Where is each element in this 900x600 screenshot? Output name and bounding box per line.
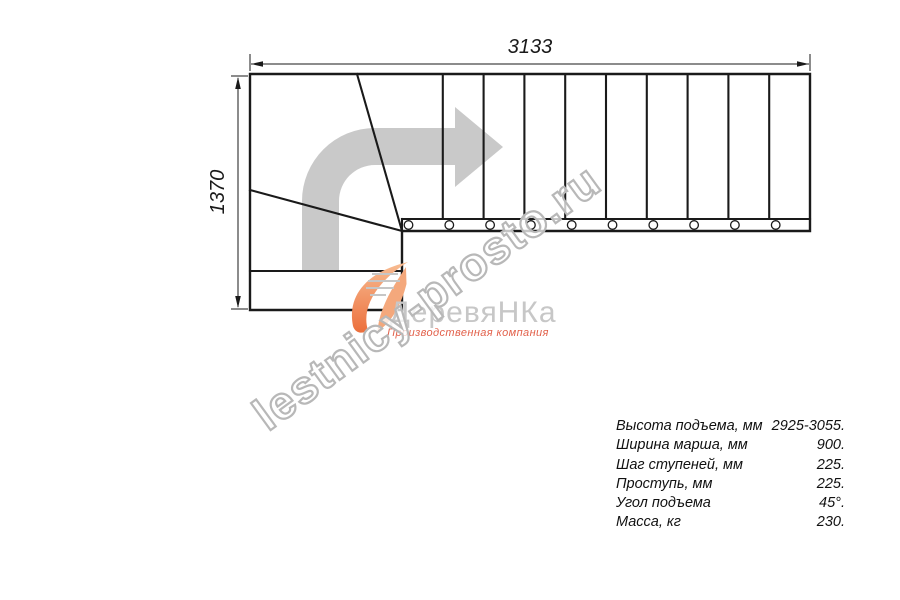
spec-label: Ширина марша, мм bbox=[616, 436, 748, 455]
spec-row-mass: Масса, кг 230. bbox=[616, 513, 845, 532]
fastener-circle bbox=[445, 221, 454, 230]
spec-value: 225. bbox=[817, 456, 845, 475]
spec-label: Шаг ступеней, мм bbox=[616, 456, 743, 475]
specs-table: Высота подъема, мм 2925-3055. Ширина мар… bbox=[616, 417, 845, 533]
spec-value: 225. bbox=[817, 475, 845, 494]
fastener-circle bbox=[771, 221, 780, 230]
fastener-circle bbox=[731, 221, 740, 230]
spec-value: 2925-3055. bbox=[772, 417, 845, 436]
spec-label: Высота подъема, мм bbox=[616, 417, 763, 436]
spec-row-step-pitch: Шаг ступеней, мм 225. bbox=[616, 456, 845, 475]
spec-label: Масса, кг bbox=[616, 513, 681, 532]
spec-row-tread: Проступь, мм 225. bbox=[616, 475, 845, 494]
fastener-circle bbox=[608, 221, 617, 230]
dim-height-label: 1370 bbox=[207, 170, 229, 215]
spec-value: 45°. bbox=[819, 494, 845, 513]
dim-width-label: 3133 bbox=[508, 36, 553, 58]
spec-value: 230. bbox=[817, 513, 845, 532]
fastener-circle bbox=[404, 221, 413, 230]
spec-row-height: Высота подъема, мм 2925-3055. bbox=[616, 417, 845, 436]
fastener-circle bbox=[649, 221, 658, 230]
fastener-circle bbox=[690, 221, 699, 230]
spec-value: 900. bbox=[817, 436, 845, 455]
spec-label: Проступь, мм bbox=[616, 475, 712, 494]
spec-row-angle: Угол подъема 45°. bbox=[616, 494, 845, 513]
spec-row-width: Ширина марша, мм 900. bbox=[616, 436, 845, 455]
spec-label: Угол подъема bbox=[616, 494, 711, 513]
drawing-canvas: 3133 1370 ДеревяНКа Производственная ком… bbox=[0, 0, 900, 600]
fastener-circles bbox=[404, 221, 780, 230]
